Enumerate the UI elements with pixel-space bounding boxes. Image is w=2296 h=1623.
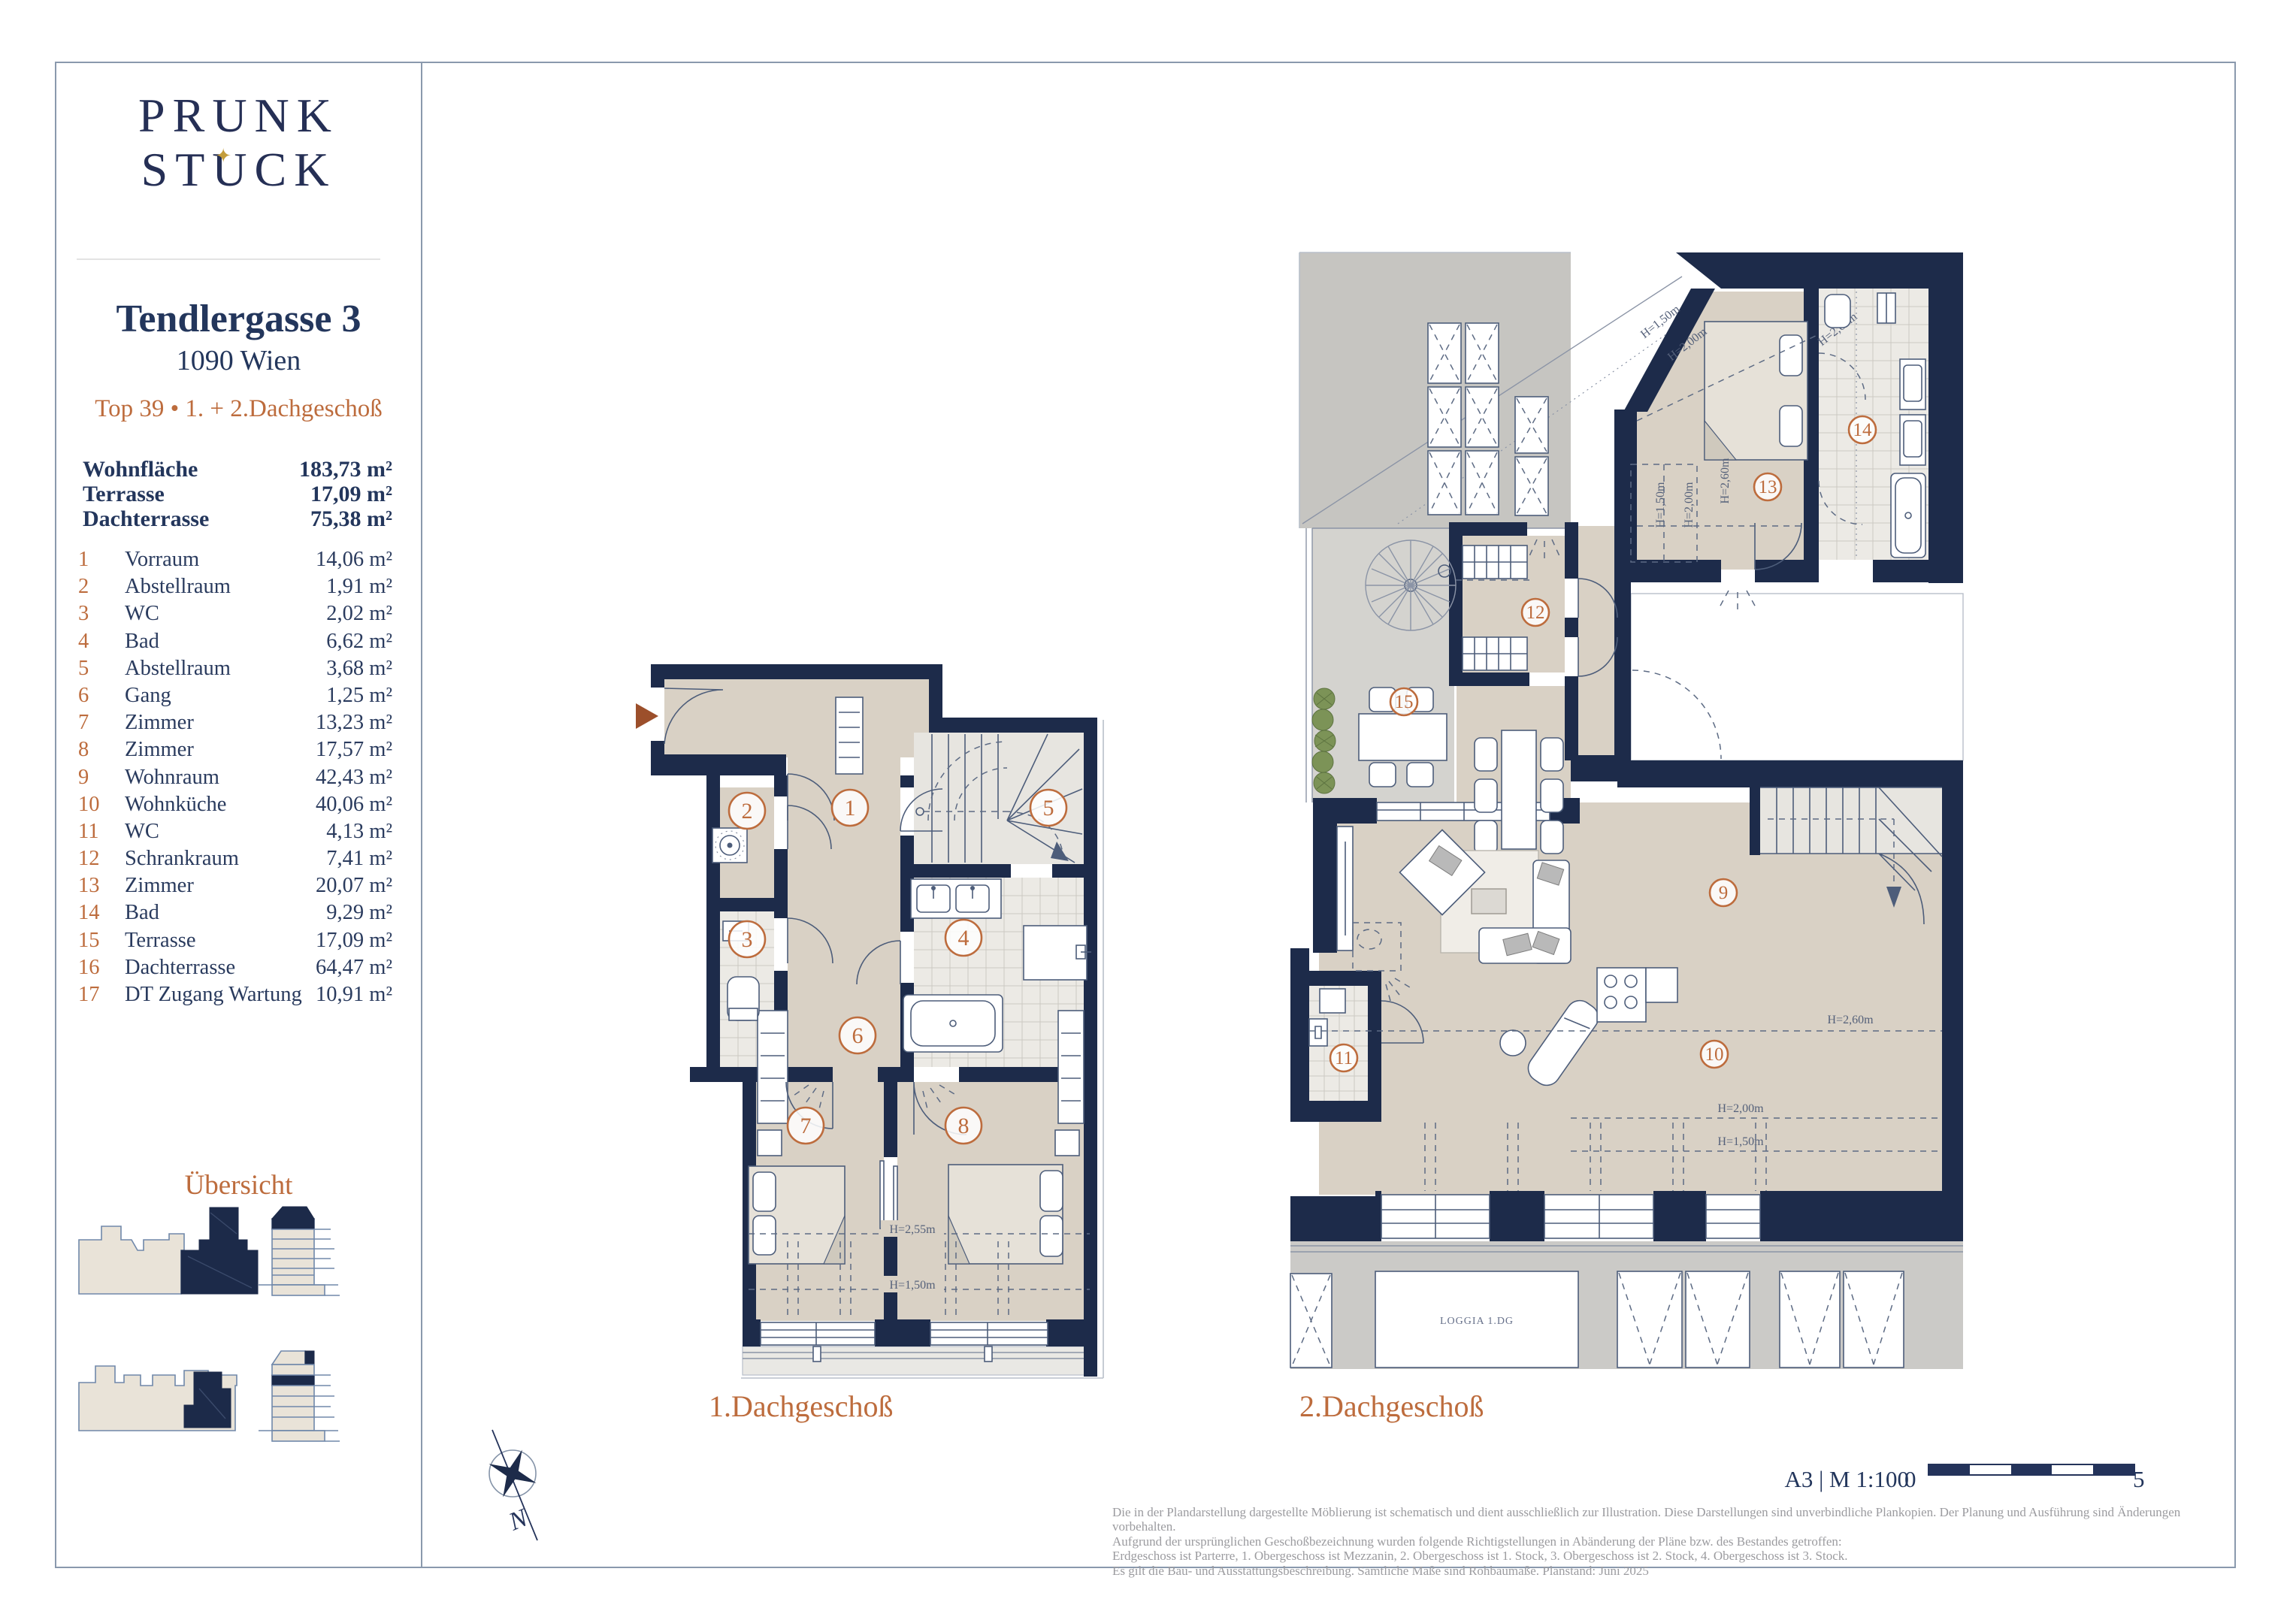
svg-text:6: 6: [852, 1023, 864, 1048]
svg-text:H=2,00m: H=2,00m: [1717, 1102, 1764, 1115]
room-row: 17 DT Zugang Wartung 10,91 m²: [78, 981, 392, 1008]
summary-label: Dachterrasse: [83, 506, 209, 531]
area-summary: Wohnfläche 183,73 m² Terrasse 17,09 m² D…: [83, 457, 392, 531]
summary-value: 75,38 m²: [310, 506, 392, 531]
svg-text:11: 11: [1335, 1048, 1353, 1068]
room-number: 12: [78, 845, 108, 872]
room-row: 3 WC 2,02 m²: [78, 600, 392, 627]
room-number: 11: [78, 818, 108, 845]
shower-icon: [1024, 926, 1091, 980]
room-area: 13,23 m²: [316, 709, 392, 736]
room-number: 2: [78, 573, 108, 600]
plan2-caption: 2.Dachgeschoß: [1299, 1389, 1484, 1424]
star-icon: ✦: [215, 129, 231, 183]
sheet-scale-label: A3 | M 1:100: [1774, 1466, 1909, 1493]
plant-icons: [1312, 688, 1336, 793]
bed-icon-room7: [749, 1166, 845, 1264]
room-area: 1,91 m²: [326, 573, 392, 600]
svg-text:5: 5: [1043, 796, 1054, 821]
room-name: Terrasse: [108, 927, 316, 954]
svg-text:8: 8: [958, 1114, 970, 1138]
mini-floorplan-1dg: [79, 1366, 237, 1431]
unit-line: Top 39 • 1. + 2.Dachgeschoß: [55, 395, 422, 423]
room-number: 10: [78, 791, 108, 818]
svg-text:1: 1: [845, 796, 856, 821]
room-name: Wohnraum: [108, 764, 316, 791]
room-area: 17,57 m²: [316, 736, 392, 763]
room-area: 64,47 m²: [316, 954, 392, 981]
svg-text:9: 9: [1719, 883, 1729, 903]
room-number: 9: [78, 764, 108, 791]
room-name: DT Zugang Wartung: [108, 981, 316, 1008]
svg-text:3: 3: [742, 927, 753, 952]
room-name: Zimmer: [108, 872, 316, 899]
room-area: 20,07 m²: [316, 872, 392, 899]
overview-diagram-upper: [75, 1204, 361, 1309]
mini-floorplan-2dg: [79, 1207, 258, 1294]
footer-line: Aufgrund der ursprünglichen Geschoßbezei…: [1112, 1534, 2236, 1549]
room-area: 3,68 m²: [326, 655, 392, 682]
room-name: Bad: [108, 899, 326, 926]
svg-text:H=2,60m: H=2,60m: [1827, 1014, 1874, 1026]
room-number: 1: [78, 546, 108, 573]
svg-text:H=2,55m: H=2,55m: [889, 1223, 936, 1236]
summary-label: Wohnfläche: [83, 457, 198, 482]
room-area: 40,06 m²: [316, 791, 392, 818]
room-row: 1 Vorraum 14,06 m²: [78, 546, 392, 573]
washing-machine-icon: [712, 828, 747, 863]
overview-diagram-lower: [75, 1343, 361, 1456]
summary-label: Terrasse: [83, 482, 165, 506]
room-row: 15 Terrasse 17,09 m²: [78, 927, 392, 954]
room-name: Dachterrasse: [108, 954, 316, 981]
room-name: Abstellraum: [108, 655, 326, 682]
stairs-down-floor: [1759, 787, 1942, 854]
roof-notch: [1631, 594, 1963, 760]
svg-text:H=2,60m: H=2,60m: [1719, 458, 1732, 504]
footer-line: Es gilt die Bau- und Ausstattungsbeschre…: [1112, 1564, 2236, 1578]
svg-text:15: 15: [1395, 692, 1414, 712]
room-name: Vorraum: [108, 546, 316, 573]
room-row: 12 Schrankraum 7,41 m²: [78, 845, 392, 872]
room-number: 14: [78, 899, 108, 926]
bed-icon-room13: [1705, 322, 1807, 460]
bathtub-icon: [903, 995, 1003, 1052]
room-number: 4: [78, 628, 108, 655]
room-area: 2,02 m²: [326, 600, 392, 627]
room-row: 16 Dachterrasse 64,47 m²: [78, 954, 392, 981]
scalebar-five: 5: [2133, 1466, 2145, 1493]
room-name: Zimmer: [108, 709, 316, 736]
summary-value: 17,09 m²: [310, 482, 392, 506]
svg-text:2: 2: [742, 799, 753, 824]
svg-text:13: 13: [1759, 477, 1777, 497]
room-area: 1,25 m²: [326, 682, 392, 709]
room-number: 3: [78, 600, 108, 627]
floorplan-2dg: H=1,50m H=2,00m H=2,60m H=1,50m H=2,00m …: [1281, 239, 1969, 1375]
bed-icon-room8: [948, 1165, 1063, 1264]
svg-text:H=1,50m: H=1,50m: [889, 1279, 936, 1292]
room-area: 9,29 m²: [326, 899, 392, 926]
svg-text:12: 12: [1526, 603, 1545, 623]
room-list: 1 Vorraum 14,06 m² 2 Abstellraum 1,91 m²…: [78, 546, 392, 1008]
logo-divider: [77, 258, 380, 260]
room-name: Abstellraum: [108, 573, 326, 600]
brand-line2: STU✦CK: [55, 143, 422, 197]
summary-row: Dachterrasse 75,38 m²: [83, 506, 392, 531]
room-row: 8 Zimmer 17,57 m²: [78, 736, 392, 763]
summary-value: 183,73 m²: [299, 457, 392, 482]
brand-logo: PRUNK STU✦CK: [55, 89, 422, 197]
floorplan-1dg: H=2,55m H=1,50m 1 2 3 4 5 6 7 8: [631, 660, 1118, 1381]
svg-text:H=1,50m: H=1,50m: [1717, 1135, 1764, 1148]
room-area: 6,62 m²: [326, 628, 392, 655]
room-name: WC: [108, 818, 326, 845]
room-row: 2 Abstellraum 1,91 m²: [78, 573, 392, 600]
room-row: 10 Wohnküche 40,06 m²: [78, 791, 392, 818]
room-number: 6: [78, 682, 108, 709]
room-row: 9 Wohnraum 42,43 m²: [78, 764, 392, 791]
svg-text:10: 10: [1705, 1044, 1724, 1065]
room-number: 16: [78, 954, 108, 981]
room-area: 10,91 m²: [316, 981, 392, 1008]
room-row: 6 Gang 1,25 m²: [78, 682, 392, 709]
footer-line: Erdgeschoss ist Parterre, 1. Obergeschos…: [1112, 1549, 2236, 1563]
room-area: 14,06 m²: [316, 546, 392, 573]
mini-elevation-2dg: [259, 1207, 340, 1295]
project-street: Tendlergasse 3: [55, 297, 422, 341]
room-number: 15: [78, 927, 108, 954]
overview-title: Übersicht: [55, 1169, 422, 1201]
room-number: 5: [78, 655, 108, 682]
compass-icon: N: [470, 1424, 590, 1555]
svg-text:H=1,50m: H=1,50m: [1654, 482, 1667, 528]
scalebar-zero: 0: [1904, 1466, 1916, 1493]
svg-text:7: 7: [800, 1114, 812, 1138]
room-name: Zimmer: [108, 736, 316, 763]
summary-row: Wohnfläche 183,73 m²: [83, 457, 392, 482]
dining-table-room9: [1475, 730, 1563, 854]
loggia-band: LOGGIA 1.DG: [1290, 1241, 1963, 1369]
double-sink-icon: [911, 879, 1001, 918]
room-area: 42,43 m²: [316, 764, 392, 791]
room-row: 7 Zimmer 13,23 m²: [78, 709, 392, 736]
svg-text:H=2,00m: H=2,00m: [1683, 482, 1696, 528]
loggia-label: LOGGIA 1.DG: [1440, 1316, 1514, 1327]
room-number: 13: [78, 872, 108, 899]
room-area: 17,09 m²: [316, 927, 392, 954]
room-name: Wohnküche: [108, 791, 316, 818]
room-name: Bad: [108, 628, 326, 655]
nightstand-icon: [758, 1130, 782, 1156]
room-number: 8: [78, 736, 108, 763]
room-row: 4 Bad 6,62 m²: [78, 628, 392, 655]
mini-elevation-1dg: [259, 1351, 340, 1441]
room-row: 13 Zimmer 20,07 m²: [78, 872, 392, 899]
room-name: Gang: [108, 682, 326, 709]
room-name: Schrankraum: [108, 845, 326, 872]
room-row: 5 Abstellraum 3,68 m²: [78, 655, 392, 682]
sidebar-divider: [421, 62, 422, 1567]
svg-text:4: 4: [958, 926, 970, 951]
project-city: 1090 Wien: [55, 344, 422, 377]
plan1-caption: 1.Dachgeschoß: [709, 1389, 893, 1424]
scalebar: [1928, 1464, 2135, 1476]
room-row: 11 WC 4,13 m²: [78, 818, 392, 845]
loggia-strip: [743, 1346, 1094, 1375]
room-area: 7,41 m²: [326, 845, 392, 872]
room-number: 17: [78, 981, 108, 1008]
room-row: 14 Bad 9,29 m²: [78, 899, 392, 926]
room-name: WC: [108, 600, 326, 627]
summary-row: Terrasse 17,09 m²: [83, 482, 392, 506]
room-number: 7: [78, 709, 108, 736]
footer-line: Die in der Plandarstellung dargestellte …: [1112, 1505, 2236, 1534]
svg-text:14: 14: [1853, 420, 1873, 440]
nightstand-icon: [1055, 1130, 1079, 1156]
brand-line1: PRUNK: [55, 89, 422, 143]
room-area: 4,13 m²: [326, 818, 392, 845]
footer-disclaimer: Die in der Plandarstellung dargestellte …: [1112, 1505, 2236, 1578]
